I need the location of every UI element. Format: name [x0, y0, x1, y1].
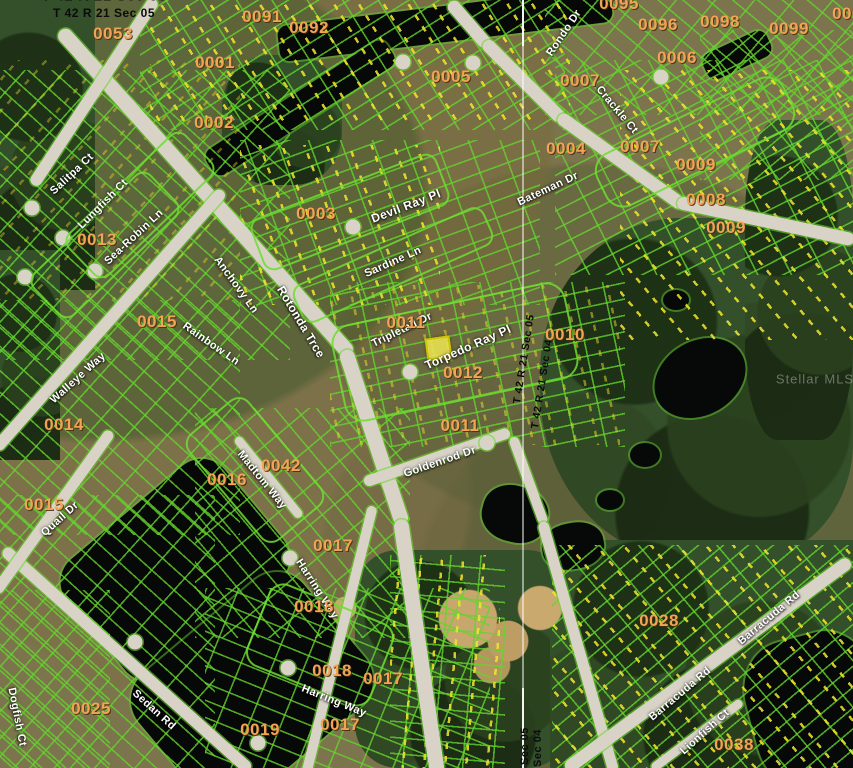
plat-number-label: 0011: [387, 313, 426, 333]
section-township-label: T 42 R 21 Sec 05: [511, 313, 537, 404]
street-name-label: Sedan Rd: [130, 687, 178, 732]
street-name-label: Rainbow Ln: [180, 320, 241, 368]
section-township-label: Sec 04: [532, 729, 544, 767]
street-name-label: Sardine Ln: [363, 244, 423, 280]
street-name-label: Crackle Ct: [594, 84, 641, 136]
section-township-label: T 42 R 21 Sec 05: [53, 6, 155, 20]
plat-number-label: 0038: [714, 735, 754, 755]
section-township-label: T 42 R 21 Sec 04: [529, 338, 555, 429]
plat-number-label: 0006: [657, 48, 697, 68]
street-name-label: Dogfish Ct: [5, 687, 28, 748]
plat-number-label: 0016: [207, 470, 247, 490]
parcel-map: Rondo DrCrackle CtBateman DrDevil Ray Pl…: [0, 0, 853, 768]
street-name-label: Barracuda Rd: [647, 665, 714, 724]
plat-number-label: 0009: [706, 218, 746, 238]
plat-number-label: 0017: [313, 536, 353, 556]
plat-number-label: 0053: [93, 24, 133, 44]
plat-number-label: 0013: [77, 230, 117, 250]
watermark: Stellar MLS: [776, 372, 853, 387]
street-name-label: Devil Ray Pl: [369, 186, 443, 225]
plat-number-label: 0015: [24, 495, 64, 515]
plat-number-label: 0001: [195, 53, 235, 73]
street-name-label: Harring Way: [300, 683, 368, 720]
plat-number-label: 0095: [599, 0, 639, 14]
street-name-label: Bateman Dr: [516, 170, 581, 209]
plat-number-label: 0017: [320, 715, 360, 735]
plat-number-label: 0028: [639, 611, 679, 631]
section-township-label: Sec 05: [519, 727, 531, 765]
plat-number-label: 0092: [289, 18, 329, 38]
plat-number-label: 0002: [194, 113, 234, 133]
street-name-label: Lungfish Ct: [76, 177, 131, 232]
plat-number-label: 0011: [441, 416, 480, 436]
plat-number-label: 0007: [620, 137, 660, 157]
plat-number-label: 0014: [44, 415, 84, 435]
plat-number-label: 0010: [545, 325, 585, 345]
street-name-label: Salitpa Ct: [48, 151, 96, 197]
street-name-label: Barracuda Rd: [736, 589, 803, 648]
plat-number-label: 0017: [363, 669, 403, 689]
plat-number-label: 0003: [296, 204, 336, 224]
plat-number-label: 0018: [312, 661, 352, 681]
street-name-label: Goldenrod Dr: [402, 444, 477, 480]
plat-number-label: 0015: [137, 312, 177, 332]
street-name-label: Walleye Way: [48, 350, 108, 406]
plat-number-label: 0006: [832, 4, 853, 24]
plat-number-label: 0009: [676, 155, 716, 175]
street-name-label: Rondo Dr: [544, 8, 584, 59]
plat-number-label: 0042: [261, 456, 301, 476]
plat-number-label: 0091: [242, 7, 282, 27]
plat-number-label: 0018: [294, 597, 334, 617]
plat-number-label: 0004: [546, 139, 586, 159]
plat-number-label: 0098: [700, 12, 740, 32]
plat-number-label: 0099: [769, 19, 809, 39]
labels-layer: Rondo DrCrackle CtBateman DrDevil Ray Pl…: [0, 0, 853, 768]
plat-number-label: 0008: [686, 190, 726, 210]
plat-number-label: 0096: [638, 15, 678, 35]
plat-number-label: 0007: [560, 71, 600, 91]
plat-number-label: 0012: [443, 363, 483, 383]
street-name-label: Anchovy Ln: [211, 254, 260, 315]
plat-number-label: 0025: [71, 699, 111, 719]
plat-number-label: 0005: [431, 67, 471, 87]
street-name-label: Rotonda Trce: [274, 283, 328, 360]
section-township-label: T 42 R 21 Sec 05: [41, 0, 167, 5]
plat-number-label: 0019: [240, 720, 280, 740]
